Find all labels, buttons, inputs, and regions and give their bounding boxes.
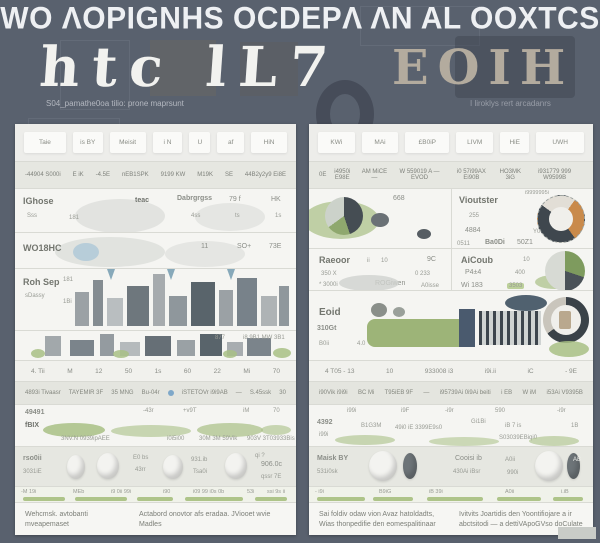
left-numbers-row: 4. Tii M 12 50 1s 60 22 Mi 70: [15, 360, 296, 381]
subheader-cell: 0E: [319, 172, 326, 178]
subheader-cell: i931779 999 W9599B: [526, 169, 583, 181]
gauge-needle-decoration: [559, 311, 571, 329]
value: i8 9B1 MW 3B1: [243, 335, 285, 341]
bar-label: iB 39i: [429, 489, 443, 495]
cell-divider: [451, 189, 452, 248]
row-label: Vioutster: [459, 195, 498, 205]
row-label: 4392: [317, 419, 333, 426]
bar-label: i9 0ii 99i: [111, 489, 131, 495]
value: 10: [381, 258, 388, 264]
bush-decoration: [113, 350, 129, 358]
value: 4884: [465, 227, 481, 234]
building-illustration: [145, 336, 171, 356]
value: 877: [215, 335, 225, 341]
roof-decoration: [505, 295, 547, 311]
page-title: WO ΛOPIGNHS OCDEPΛ ΛN AL OOXTCS: [0, 1, 600, 37]
gray-cell: S.45ssk: [250, 390, 271, 396]
column-header: HiN: [251, 132, 287, 153]
tree-decoration: [393, 307, 405, 317]
value: Cooisi ib: [455, 455, 482, 462]
green-bar: [317, 497, 365, 501]
bar-label: ssi 9s ii: [267, 489, 285, 495]
column-header: LIVM: [456, 132, 493, 153]
right-row-eoid: Eoid Ai 310Gt B0ii 4.0: [309, 290, 593, 360]
column-header: £B0iP: [405, 132, 449, 153]
value: iB 7 is: [505, 423, 521, 429]
value: i9F: [401, 408, 409, 414]
left-row-skyline2: 877 i8 9B1 MW 3B1: [15, 330, 296, 360]
row-label: WO18HC: [23, 243, 62, 253]
bar-label: i.iB: [561, 489, 569, 495]
value: 430Ai iBsr: [453, 469, 480, 475]
value: 590: [495, 408, 505, 414]
hill-decoration: [429, 437, 499, 446]
value: * 3000i: [319, 282, 338, 288]
value: B0ii: [319, 341, 329, 347]
subheader-cell: AM MiCE —: [358, 169, 390, 181]
value: 1s: [275, 213, 281, 219]
green-blob-decoration: [549, 341, 589, 357]
subheader-cell: nEB1SPK: [122, 172, 149, 178]
caption-left: S04_pamathe0oa tilio: prone maprsunt: [46, 99, 184, 108]
gray-cell: TAYEMIR 3F: [69, 390, 103, 396]
subheader-cell: -4.5E: [96, 172, 110, 178]
hill-decoration: [335, 435, 395, 445]
hill-decoration: [197, 423, 263, 437]
building-illustration: [237, 278, 257, 326]
bar-label: MEb: [73, 489, 84, 495]
corner-tab-decoration: [558, 527, 596, 539]
subheader-cell: W 559019 A — EVOD: [391, 169, 449, 181]
value: qi ?: [255, 453, 265, 459]
annotation: i9999995i: [525, 190, 549, 196]
building-illustration: [127, 286, 149, 326]
value: iM: [243, 408, 249, 414]
stone-illustration: [403, 453, 417, 479]
number-cell: 12: [95, 368, 102, 375]
right-greenbars-row: - i9i B9iG iB 39i A0ii i.iB: [309, 486, 593, 502]
building-illustration: [107, 298, 123, 326]
building-illustration: [279, 286, 289, 326]
building-illustration: [459, 309, 475, 347]
value: 4.0: [357, 341, 365, 347]
column-header: i N: [153, 132, 183, 153]
value: Wi 183: [461, 282, 483, 289]
value: 79 f: [229, 196, 241, 203]
cloud-decoration: [55, 237, 165, 267]
number-cell: 4 T05 - 13: [325, 368, 355, 375]
spot-decoration: [417, 229, 431, 239]
left-hills-row: 49491 fBIX -43r +v9T iM 70 3NV.N 0939ipA…: [15, 404, 296, 446]
caption: 3NV.N 0939ipAEE: [61, 436, 110, 442]
value: -i9r: [557, 408, 566, 414]
green-bar: [137, 497, 173, 501]
bar-label: i90: [163, 489, 170, 495]
green-bar: [185, 497, 243, 501]
subheader-cell: i4950i E98E: [326, 169, 358, 181]
number-cell: i9i.ii: [485, 368, 496, 375]
building-illustration: [75, 292, 89, 326]
subheader-cell: i0 57i99AX Ei90B: [448, 169, 494, 181]
value: 350 X: [321, 271, 337, 277]
lake-decoration: [73, 243, 99, 261]
value: 668: [393, 195, 405, 202]
left-header-row: Taie is BY Meisit i N U af HiN: [15, 124, 296, 161]
value: Dabrgrgss: [177, 195, 212, 202]
value: 3503: [507, 283, 524, 289]
gray-cell: —: [423, 390, 429, 396]
stone-illustration: [225, 453, 247, 479]
row-sublabel: Sss: [27, 213, 37, 219]
right-footer-row: Sai foldiv odaw vion Avaz hatoldadts, Wi…: [309, 502, 593, 535]
caption-right: I liroklys rert arcadanrs: [470, 99, 551, 108]
value: Tsa0i: [193, 469, 207, 475]
column-header: Taie: [24, 132, 66, 153]
gray-cell: Bu-04r: [142, 390, 160, 396]
value: ii: [367, 258, 370, 264]
bar-label: B9iG: [379, 489, 391, 495]
row-label: AiCoub: [461, 255, 493, 265]
lawn-illustration: [367, 319, 471, 347]
number-cell: 1s: [155, 368, 162, 375]
value: -i9r: [445, 408, 454, 414]
hill-decoration: [43, 423, 105, 437]
value: 9C: [427, 256, 436, 263]
column-header: U: [189, 132, 210, 153]
pie-chart: [545, 251, 585, 290]
right-header-row: KWi MAi £B0iP LIVM HiE UWH: [309, 124, 593, 161]
green-bar: [23, 497, 65, 501]
stone-illustration: [369, 451, 397, 481]
cloud-decoration: [195, 203, 265, 231]
row-label: Maisk BY: [317, 455, 348, 462]
left-greenbars-row: -M 19i MEb i9 0ii 99i i90 i09 99 i0s 0b …: [15, 486, 296, 502]
value: +v9T: [183, 408, 197, 414]
caption: i0i5i00: [167, 436, 184, 442]
subheader-cell: SE: [225, 172, 233, 178]
number-cell: 60: [184, 368, 191, 375]
footnote: Actabord onovtor afs eradaa. JViooet wvi…: [139, 510, 286, 535]
value: qssr 7E: [261, 474, 281, 480]
row-sublabel: fBIX: [25, 422, 39, 429]
value: 255: [469, 213, 479, 219]
column-header: HiE: [500, 132, 529, 153]
drip-decoration: [107, 269, 115, 280]
subheader-cell: -44904 S000i: [25, 172, 61, 178]
value: 400: [515, 270, 525, 276]
value: A0ii: [505, 457, 515, 463]
pie-chart: [325, 197, 363, 235]
wordmark-left: htc lL7: [38, 34, 342, 99]
bush-decoration: [223, 350, 237, 358]
stone-illustration: [97, 453, 119, 479]
value: B1G3M: [361, 423, 381, 429]
bar-label: i09 99 i0s 0b: [193, 489, 224, 495]
column-header: af: [217, 132, 244, 153]
value: AB: [573, 457, 581, 463]
value: 70: [273, 408, 280, 414]
right-gray-row: i90Vik i9i9i BC Mi T95iEB 9F — i95739Ai …: [309, 381, 593, 404]
stone-illustration: [67, 455, 85, 479]
column-header: Meisit: [110, 132, 146, 153]
stone-illustration: [163, 455, 183, 479]
green-bar: [255, 497, 287, 501]
right-row-vioutster: i9999995i 668 Vioutster 255 4884 0511 Ba…: [309, 188, 593, 248]
subheader-cell: 9199 KW: [161, 172, 186, 178]
row-sublabel: sDassy: [25, 293, 45, 299]
row-sublabel: i99i: [319, 432, 328, 438]
bush-decoration: [273, 348, 291, 358]
spot-decoration: [371, 213, 389, 227]
green-bar: [427, 497, 483, 501]
value: SO+: [237, 243, 251, 250]
number-cell: 933008 i3: [425, 368, 454, 375]
wordmark-right: EOIH: [392, 40, 574, 96]
value: 1B: [571, 423, 578, 429]
number-cell: iC: [527, 368, 533, 375]
left-row-skyline: Roh Sep sDassy 181 1Bi: [15, 268, 296, 330]
gray-cell: 4893i Tivaasr: [25, 390, 61, 396]
row-label: 49491: [25, 409, 44, 416]
value: 50Z1: [517, 239, 533, 246]
row-label: IGhose: [23, 196, 54, 206]
value: 11: [201, 243, 208, 250]
hill-decoration: [261, 425, 291, 435]
subheader-cell: HO3MK 3iG: [494, 169, 526, 181]
colonnade-illustration: [479, 311, 541, 345]
right-row-raeoor: Raeoor ii 10 9C 350 X 0 233 * 3000i ROGi…: [309, 248, 593, 290]
building-illustration: [177, 340, 195, 356]
right-hills-row: i99i i9F -i9r 590 -i9r 4392 i99i B1G3M 4…: [309, 404, 593, 446]
building-illustration: [191, 282, 215, 326]
value: ts: [235, 213, 240, 219]
row-label: Roh Sep: [23, 277, 60, 287]
left-stones-row: rso0ii 3031iE E0 bs 43rr 931.ib Tsa0i qi…: [15, 446, 296, 486]
donut-hole: [549, 207, 573, 231]
value: 0 233: [415, 271, 430, 277]
row-label: rso0ii: [23, 455, 42, 462]
value: 310Gt: [317, 325, 336, 332]
column-header: MAi: [362, 132, 399, 153]
value: 906.0c: [261, 461, 282, 468]
value: 1Bi: [63, 299, 72, 305]
gray-cell: 35 MNG: [111, 390, 133, 396]
number-cell: - 9E: [565, 368, 577, 375]
building-illustration: [70, 340, 94, 356]
green-bar: [75, 497, 127, 501]
column-header: UWH: [536, 132, 584, 153]
building-illustration: [100, 334, 114, 356]
gray-cell: 30: [279, 390, 286, 396]
hill-decoration: [529, 436, 579, 446]
number-cell: 70: [273, 368, 280, 375]
value: 0511: [457, 241, 470, 247]
value: HK: [271, 196, 281, 203]
cloud-decoration: [75, 199, 165, 232]
value: Ba0Di: [485, 239, 505, 246]
bush-decoration: [31, 349, 45, 358]
column-header: is BY: [73, 132, 103, 153]
value: 4ss: [191, 213, 200, 219]
gray-cell: i53Ai V9395B: [547, 390, 583, 396]
stone-illustration: [535, 451, 563, 481]
cloud-decoration: [339, 275, 399, 290]
bar-label: 53i: [247, 489, 254, 495]
value: 990i: [507, 470, 518, 476]
value: teac: [135, 197, 149, 204]
subheader-cell: 44B2y2y9 Ei8E: [245, 172, 286, 178]
row-sublabel: 531i0sk: [317, 469, 338, 475]
gray-cell: i EB: [501, 390, 512, 396]
footnote: Wehcmsk. avtobanti mveapemaset: [25, 510, 123, 535]
value: 10: [523, 257, 530, 263]
value: 181: [63, 277, 73, 283]
row-label: Raeoor: [319, 255, 350, 265]
bar-label: -M 19i: [21, 489, 36, 495]
tree-decoration: [371, 303, 387, 317]
value: 43rr: [135, 467, 146, 473]
building-illustration: [93, 280, 103, 326]
subheader-cell: M19K: [197, 172, 213, 178]
gray-cell: W iM: [523, 390, 537, 396]
left-row-wo18hc: WO18HC 11 SO+ 73E: [15, 232, 296, 268]
value: 73E: [269, 243, 281, 250]
value: A0isse: [421, 283, 439, 289]
value: P4±4: [465, 269, 481, 276]
cell-divider: [451, 249, 452, 290]
right-stones-row: Maisk BY 531i0sk Cooisi ib 430Ai iBsr A0…: [309, 446, 593, 486]
building-illustration: [219, 290, 233, 326]
right-numbers-row: 4 T05 - 13 10 933008 i3 i9i.ii iC - 9E: [309, 360, 593, 381]
blue-dot-icon: [168, 390, 174, 396]
left-gray-row: 4893i Tivaasr TAYEMIR 3F 35 MNG Bu-04r i…: [15, 381, 296, 404]
green-bar: [553, 497, 583, 501]
gray-cell: i90Vik i9i9i: [319, 390, 348, 396]
row-sublabel: 3031iE: [23, 469, 42, 475]
green-bar: [497, 497, 541, 501]
left-row-ghose: IGhose Sss 181 teac Dabrgrgss 4ss 79 f t…: [15, 188, 296, 232]
left-subheader-row: -44904 S000i E iK -4.5E nEB1SPK 9199 KW …: [15, 161, 296, 188]
row-label: Eoid: [319, 307, 341, 318]
left-footer-row: Wehcmsk. avtobanti mveapemaset Actabord …: [15, 502, 296, 535]
gray-cell: iSTETOVr i9i9AB: [182, 390, 228, 396]
column-header: KWi: [318, 132, 355, 153]
number-cell: M: [67, 368, 72, 375]
footnote: Sai foldiv odaw vion Avaz hatoldadts, Wi…: [319, 510, 443, 535]
building-illustration: [45, 336, 61, 356]
value: i99i: [347, 408, 356, 414]
number-cell: 50: [125, 368, 132, 375]
right-panel: KWi MAi £B0iP LIVM HiE UWH 0E i4950i E98…: [309, 124, 593, 535]
gray-cell: —: [236, 390, 242, 396]
number-cell: Mi: [243, 368, 250, 375]
number-cell: 22: [214, 368, 221, 375]
building-illustration: [169, 296, 187, 326]
gray-cell: i95739Ai 0i9Ai beiti: [440, 390, 491, 396]
value: 181: [69, 215, 79, 221]
bar-label: A0ii: [505, 489, 514, 495]
subheader-cell: E iK: [73, 172, 84, 178]
gray-cell: T95iEB 9F: [385, 390, 413, 396]
caption: 903V 3T03933Bis: [247, 436, 295, 442]
green-bar: [373, 497, 413, 501]
number-cell: 10: [386, 368, 393, 375]
value: 49i0 iE 3399E9s0: [395, 425, 442, 431]
number-cell: 4. Tii: [31, 368, 45, 375]
building-illustration: [261, 296, 277, 326]
right-subheader-row: 0E i4950i E98E AM MiCE — W 559019 A — EV…: [309, 161, 593, 188]
drip-decoration: [167, 269, 175, 280]
value: 931.ib: [191, 457, 207, 463]
gray-cell: BC Mi: [358, 390, 374, 396]
value: Gi1Bi: [471, 419, 486, 425]
value: E0 bs: [133, 455, 148, 461]
bar-label: - i9i: [315, 489, 324, 495]
drip-decoration: [227, 269, 235, 280]
building-illustration: [153, 274, 165, 326]
caption: 30M 3M 59Vik: [199, 436, 237, 442]
value: -43r: [143, 408, 154, 414]
left-panel: Taie is BY Meisit i N U af HiN -44904 S0…: [15, 124, 296, 535]
